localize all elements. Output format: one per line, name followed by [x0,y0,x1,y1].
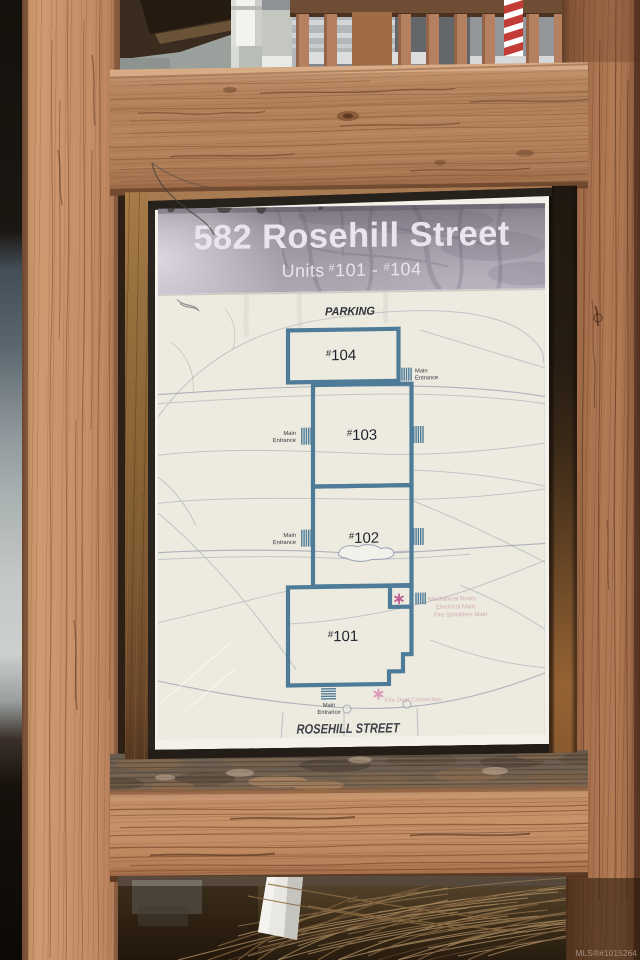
svg-text:Fire Sprinklers Main: Fire Sprinklers Main [434,612,487,619]
svg-text:#102: #102 [349,530,379,547]
svg-text:Main: Main [283,533,296,539]
svg-text:Entrance: Entrance [415,375,438,381]
svg-text:#104: #104 [326,347,356,364]
svg-text:ROSEHILL STREET: ROSEHILL STREET [297,720,401,737]
svg-text:#101: #101 [328,628,358,645]
svg-text:Electrical Main: Electrical Main [436,604,475,611]
svg-text:Main: Main [415,368,428,374]
svg-text:Main: Main [283,431,296,437]
svg-text:PARKING: PARKING [325,306,375,319]
svg-text:Entrance: Entrance [273,540,296,546]
svg-text:Entrance: Entrance [273,438,296,444]
svg-text:Main: Main [323,703,336,709]
svg-text:Entrance: Entrance [317,710,340,716]
svg-text:#103: #103 [347,427,377,444]
svg-text:Fire Dept Connection: Fire Dept Connection [385,697,442,704]
svg-text:Mechanical Room: Mechanical Room [428,596,476,603]
